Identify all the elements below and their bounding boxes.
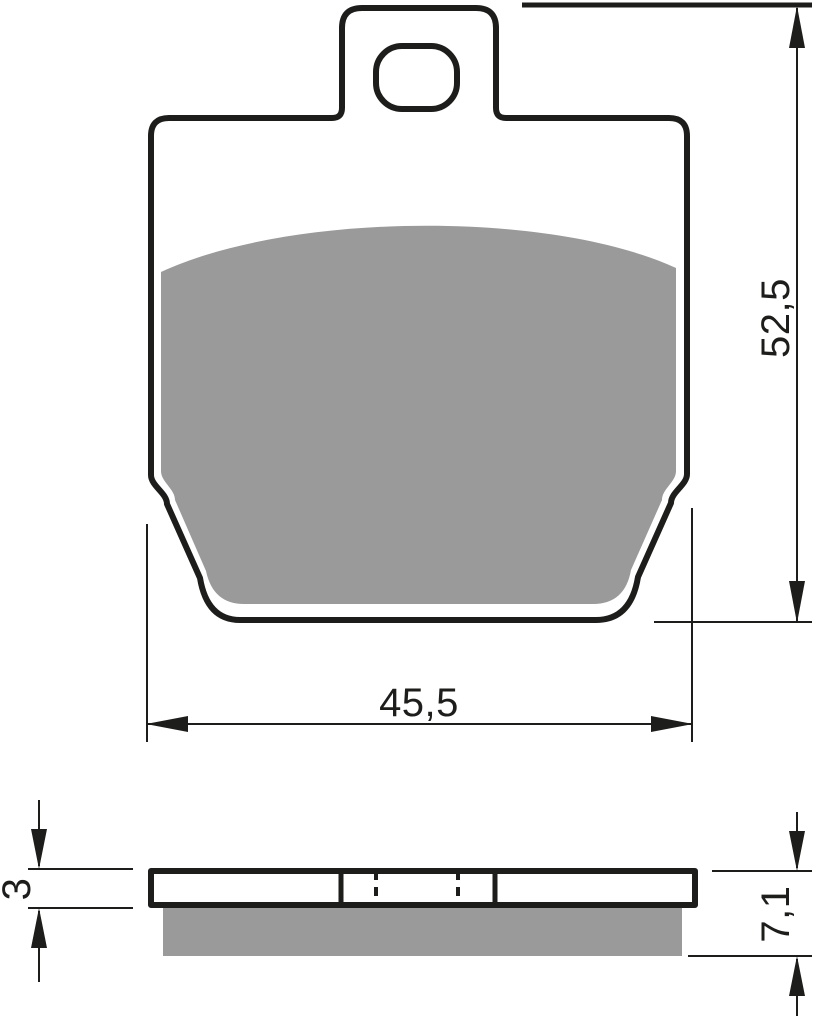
plate-thickness-label: 3: [0, 878, 39, 901]
width-dimension-label: 45,5: [379, 681, 459, 725]
arrow-left-icon: [146, 716, 188, 732]
arrow-down-icon: [31, 829, 47, 869]
arrow-right-icon: [651, 716, 693, 732]
backing-plate-side: [151, 871, 695, 905]
height-dimension-label: 52,5: [754, 278, 798, 358]
brake-pad-drawing: 52,5 45,5: [0, 0, 816, 1024]
friction-material-front: [161, 226, 676, 604]
arrow-up-icon: [789, 956, 805, 996]
technical-drawing-page: 52,5 45,5: [0, 0, 816, 1024]
front-view: [151, 8, 687, 620]
arrow-up-icon: [789, 6, 805, 48]
friction-material-side: [163, 908, 682, 956]
dimension-total-thickness: 7,1: [688, 812, 812, 1016]
mounting-hole: [376, 46, 457, 109]
arrow-down-icon: [789, 581, 805, 623]
total-thickness-label: 7,1: [754, 885, 798, 942]
arrow-down-icon: [789, 831, 805, 871]
arrow-up-icon: [31, 908, 47, 948]
dimension-plate-thickness: 3: [0, 800, 133, 982]
side-view: [151, 871, 695, 956]
